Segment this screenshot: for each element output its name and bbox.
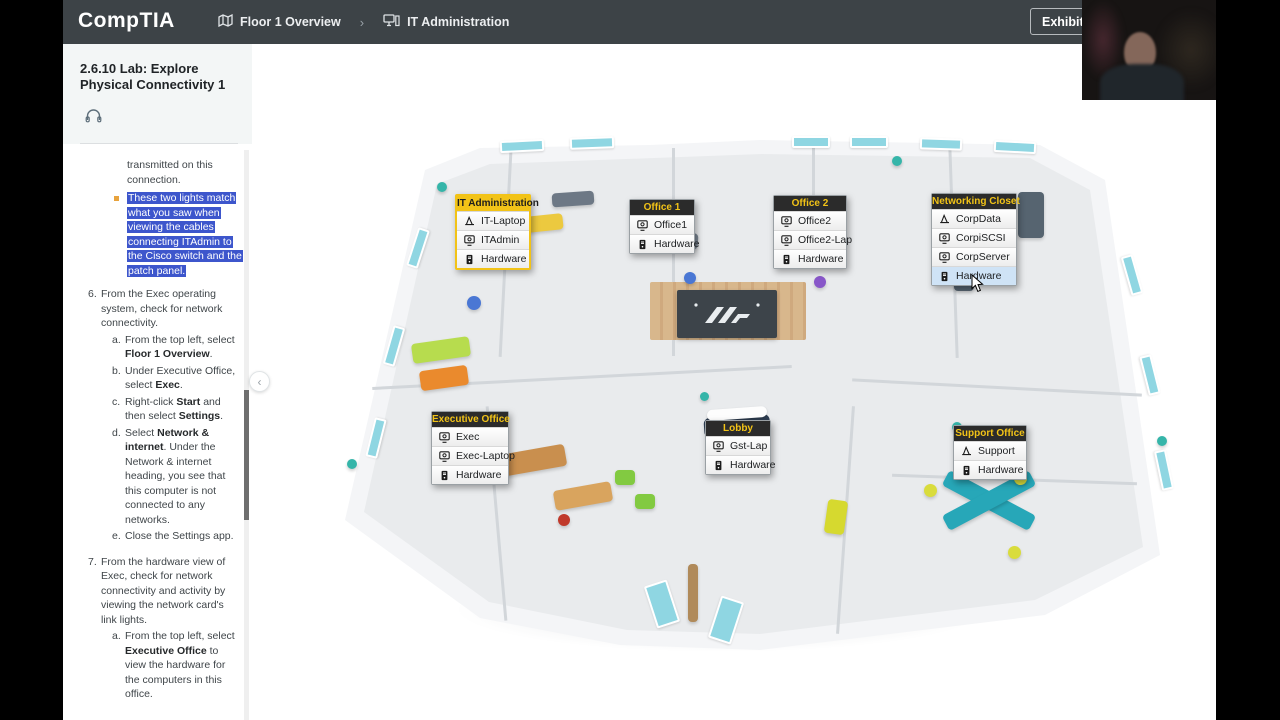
floorplan-decor	[688, 564, 698, 622]
floorplan-decor	[700, 392, 709, 401]
person-body	[1100, 64, 1184, 100]
menu-title-office-1[interactable]: Office 1	[630, 200, 694, 215]
menu-item-office1[interactable]: Office1	[630, 215, 694, 234]
substep-letter: a.	[112, 333, 125, 362]
menu-item-label: Hardware	[456, 469, 502, 481]
menu-item-label: CorpData	[956, 213, 1001, 225]
menu-item-corpiscsi[interactable]: CorpiSCSI	[932, 228, 1016, 247]
substep-text: Right-click Start and then select Settin…	[125, 395, 242, 424]
instruction-substep: a.From the top left, select Executive Of…	[112, 629, 242, 702]
substep-text: From the top left, select Executive Offi…	[125, 629, 242, 702]
instructions: transmitted on this connection. These tw…	[63, 144, 252, 706]
monitor-icon	[637, 220, 648, 231]
headphones-icon[interactable]	[84, 107, 103, 129]
chevron-right-icon: ›	[360, 15, 364, 30]
floorplan-decor	[1121, 254, 1144, 296]
device-menu-office-1: Office 1Office1Hardware	[629, 199, 695, 254]
tower-icon	[637, 239, 648, 250]
substep-letter: b.	[112, 364, 125, 393]
company-logo-icon	[691, 299, 763, 329]
monitor-icon	[439, 451, 450, 462]
floorplan-illustration	[252, 44, 1216, 720]
tower-icon	[961, 465, 972, 476]
floorplan-decor	[994, 140, 1037, 154]
monitor-icon	[781, 235, 792, 246]
floorplan-decor	[1139, 354, 1160, 396]
substep-letter: d.	[112, 426, 125, 528]
substep-text: Under Executive Office, select Exec.	[125, 364, 242, 393]
menu-item-label: Hardware	[730, 459, 776, 471]
substep-letter: e.	[112, 529, 125, 544]
menu-item-label: Support	[978, 445, 1015, 457]
sidebar: 2.6.10 Lab: Explore Physical Connectivit…	[63, 44, 252, 720]
floorplan-decor	[892, 156, 902, 166]
step-text: From the hardware view of Exec, check fo…	[101, 555, 242, 707]
menu-item-gst-lap[interactable]: Gst-Lap	[706, 436, 770, 455]
substep-letter: c.	[112, 395, 125, 424]
device-menu-lobby: LobbyGst-LapHardware	[705, 420, 771, 475]
map-icon	[218, 14, 233, 30]
floorplan-view: IT AdministrationIT-LaptopITAdminHardwar…	[252, 44, 1216, 720]
menu-item-label: ITAdmin	[481, 234, 519, 246]
substep-text: Above the Exec workstation (not the lapt…	[125, 704, 242, 707]
scrollbar-thumb[interactable]	[244, 390, 249, 520]
screen: CompTIA Floor 1 Overview › IT Administra…	[0, 0, 1280, 720]
lab-window: CompTIA Floor 1 Overview › IT Administra…	[63, 0, 1216, 720]
menu-item-hardware[interactable]: Hardware	[457, 249, 529, 268]
chevron-left-icon: ‹	[258, 375, 262, 389]
tower-icon	[464, 254, 475, 265]
monitor-icon	[464, 235, 475, 246]
menu-item-itadmin[interactable]: ITAdmin	[457, 230, 529, 249]
instruction-fragment: transmitted on this connection.	[127, 158, 247, 187]
lobby-sign	[677, 290, 777, 338]
floorplan-decor	[1154, 449, 1174, 491]
tower-icon	[439, 470, 450, 481]
floorplan-decor	[437, 182, 447, 192]
menu-item-hardware[interactable]: Hardware	[630, 234, 694, 253]
monitor-icon	[939, 233, 950, 244]
menu-item-hardware[interactable]: Hardware	[432, 465, 508, 484]
menu-item-label: Exec	[456, 431, 479, 443]
mouse-cursor-icon	[971, 274, 984, 293]
menu-title-networking-closet[interactable]: Networking Closet	[932, 194, 1016, 209]
monitor-icon	[781, 216, 792, 227]
instruction-step: 6.From the Exec operating system, check …	[88, 287, 240, 546]
lab-title: 2.6.10 Lab: Explore Physical Connectivit…	[80, 61, 242, 93]
instruction-step: 7.From the hardware view of Exec, check …	[88, 555, 240, 707]
sidebar-scrollbar[interactable]	[244, 150, 249, 720]
step-text: From the Exec operating system, check fo…	[101, 287, 242, 546]
substep-text: Select Network & internet. Under the Net…	[125, 426, 242, 528]
menu-item-it-laptop[interactable]: IT-Laptop	[457, 211, 529, 230]
menu-title-support-office[interactable]: Support Office	[954, 426, 1026, 441]
floorplan-decor	[684, 272, 696, 284]
sidebar-header: 2.6.10 Lab: Explore Physical Connectivit…	[63, 44, 252, 144]
menu-item-office2-lap[interactable]: Office2-Lap	[774, 230, 846, 249]
monitor-icon	[939, 252, 950, 263]
menu-item-office2[interactable]: Office2	[774, 211, 846, 230]
menu-item-label: IT-Laptop	[481, 215, 525, 227]
breadcrumb-label: IT Administration	[407, 15, 509, 29]
menu-item-label: Exec-Laptop	[456, 450, 515, 462]
substep-text: From the top left, select Floor 1 Overvi…	[125, 333, 242, 362]
menu-item-corpdata[interactable]: CorpData	[932, 209, 1016, 228]
tower-icon	[939, 271, 950, 282]
menu-item-hardware[interactable]: Hardware	[774, 249, 846, 268]
menu-item-label: Office1	[654, 219, 687, 231]
menu-item-label: Office2-Lap	[798, 234, 852, 246]
floorplan-decor	[1008, 546, 1021, 559]
webcam-overlay	[1082, 0, 1216, 100]
step-number: 6.	[88, 287, 101, 546]
monitor-icon	[439, 432, 450, 443]
text-selection: These two lights match what you saw when…	[127, 192, 243, 277]
menu-title-executive-office[interactable]: Executive Office	[432, 412, 508, 427]
menu-item-label: Hardware	[654, 238, 700, 250]
menu-title-office-2[interactable]: Office 2	[774, 196, 846, 211]
tower-icon	[781, 254, 792, 265]
menu-item-exec-laptop[interactable]: Exec-Laptop	[432, 446, 508, 465]
sidebar-collapse-button[interactable]: ‹	[249, 371, 270, 392]
floorplan-decor	[1018, 192, 1044, 238]
floorplan-decor	[552, 191, 595, 208]
floorplan-decor	[1157, 436, 1167, 446]
comptia-logo: CompTIA	[78, 9, 175, 33]
menu-item-hardware[interactable]: Hardware	[706, 455, 770, 474]
menu-item-label: Hardware	[978, 464, 1024, 476]
highlighted-instruction: These two lights match what you saw when…	[127, 191, 246, 278]
step-number: 7.	[88, 555, 101, 707]
menu-item-label: Hardware	[481, 253, 527, 265]
tower-icon	[713, 460, 724, 471]
floorplan-decor	[920, 137, 962, 150]
floorplan-decor	[467, 296, 481, 310]
menu-item-label: CorpiSCSI	[956, 232, 1006, 244]
breadcrumb-floor-1-overview[interactable]: Floor 1 Overview	[218, 14, 341, 30]
floorplan-decor	[347, 459, 357, 469]
instruction-substep: c.Right-click Start and then select Sett…	[112, 395, 242, 424]
device-menu-networking-closet: Networking ClosetCorpDataCorpiSCSICorpSe…	[931, 193, 1017, 286]
instruction-substep: a.From the top left, select Floor 1 Over…	[112, 333, 242, 362]
menu-item-label: CorpServer	[956, 251, 1010, 263]
floorplan-decor	[635, 494, 655, 509]
monitor-icon	[713, 441, 724, 452]
breadcrumb: Floor 1 Overview › IT Administration	[218, 0, 509, 44]
breadcrumb-label: Floor 1 Overview	[240, 15, 341, 29]
breadcrumb-it-administration[interactable]: IT Administration	[383, 14, 509, 30]
menu-item-hardware[interactable]: Hardware	[954, 460, 1026, 479]
device-menu-executive-office: Executive OfficeExecExec-LaptopHardware	[431, 411, 509, 485]
substep-letter: b.	[112, 704, 125, 707]
menu-item-label: Office2	[798, 215, 831, 227]
substep-text: Close the Settings app.	[125, 529, 242, 544]
instruction-substep: d.Select Network & internet. Under the N…	[112, 426, 242, 528]
instruction-bullet: These two lights match what you saw when…	[114, 191, 246, 278]
device-menu-it-administration: IT AdministrationIT-LaptopITAdminHardwar…	[455, 194, 531, 270]
instruction-steps: 6.From the Exec operating system, check …	[80, 287, 240, 706]
laptop-icon	[464, 216, 475, 227]
menu-title-it-administration[interactable]: IT Administration	[457, 196, 529, 211]
floorplan-decor	[850, 136, 888, 148]
menu-item-label: Hardware	[798, 253, 844, 265]
floorplan-decor	[814, 276, 826, 288]
floorplan-decor	[924, 484, 937, 497]
floorplan-decor	[558, 514, 570, 526]
menu-item-corpserver[interactable]: CorpServer	[932, 247, 1016, 266]
top-bar: CompTIA Floor 1 Overview › IT Administra…	[63, 0, 1216, 44]
floorplan-decor	[792, 136, 830, 148]
workstation-icon	[383, 14, 400, 30]
instruction-substep: e.Close the Settings app.	[112, 529, 242, 544]
floorplan-decor	[615, 470, 635, 485]
device-menu-support-office: Support OfficeSupportHardware	[953, 425, 1027, 480]
menu-item-exec[interactable]: Exec	[432, 427, 508, 446]
substep-letter: a.	[112, 629, 125, 702]
menu-title-lobby[interactable]: Lobby	[706, 421, 770, 436]
floorplan-decor	[500, 139, 545, 153]
menu-item-label: Gst-Lap	[730, 440, 767, 452]
instruction-substep: b.Above the Exec workstation (not the la…	[112, 704, 242, 707]
bullet-marker	[114, 196, 119, 201]
laptop-icon	[939, 214, 950, 225]
instruction-substep: b.Under Executive Office, select Exec.	[112, 364, 242, 393]
device-menu-office-2: Office 2Office2Office2-LapHardware	[773, 195, 847, 269]
menu-item-support[interactable]: Support	[954, 441, 1026, 460]
floorplan-decor	[570, 136, 614, 150]
laptop-icon	[961, 446, 972, 457]
